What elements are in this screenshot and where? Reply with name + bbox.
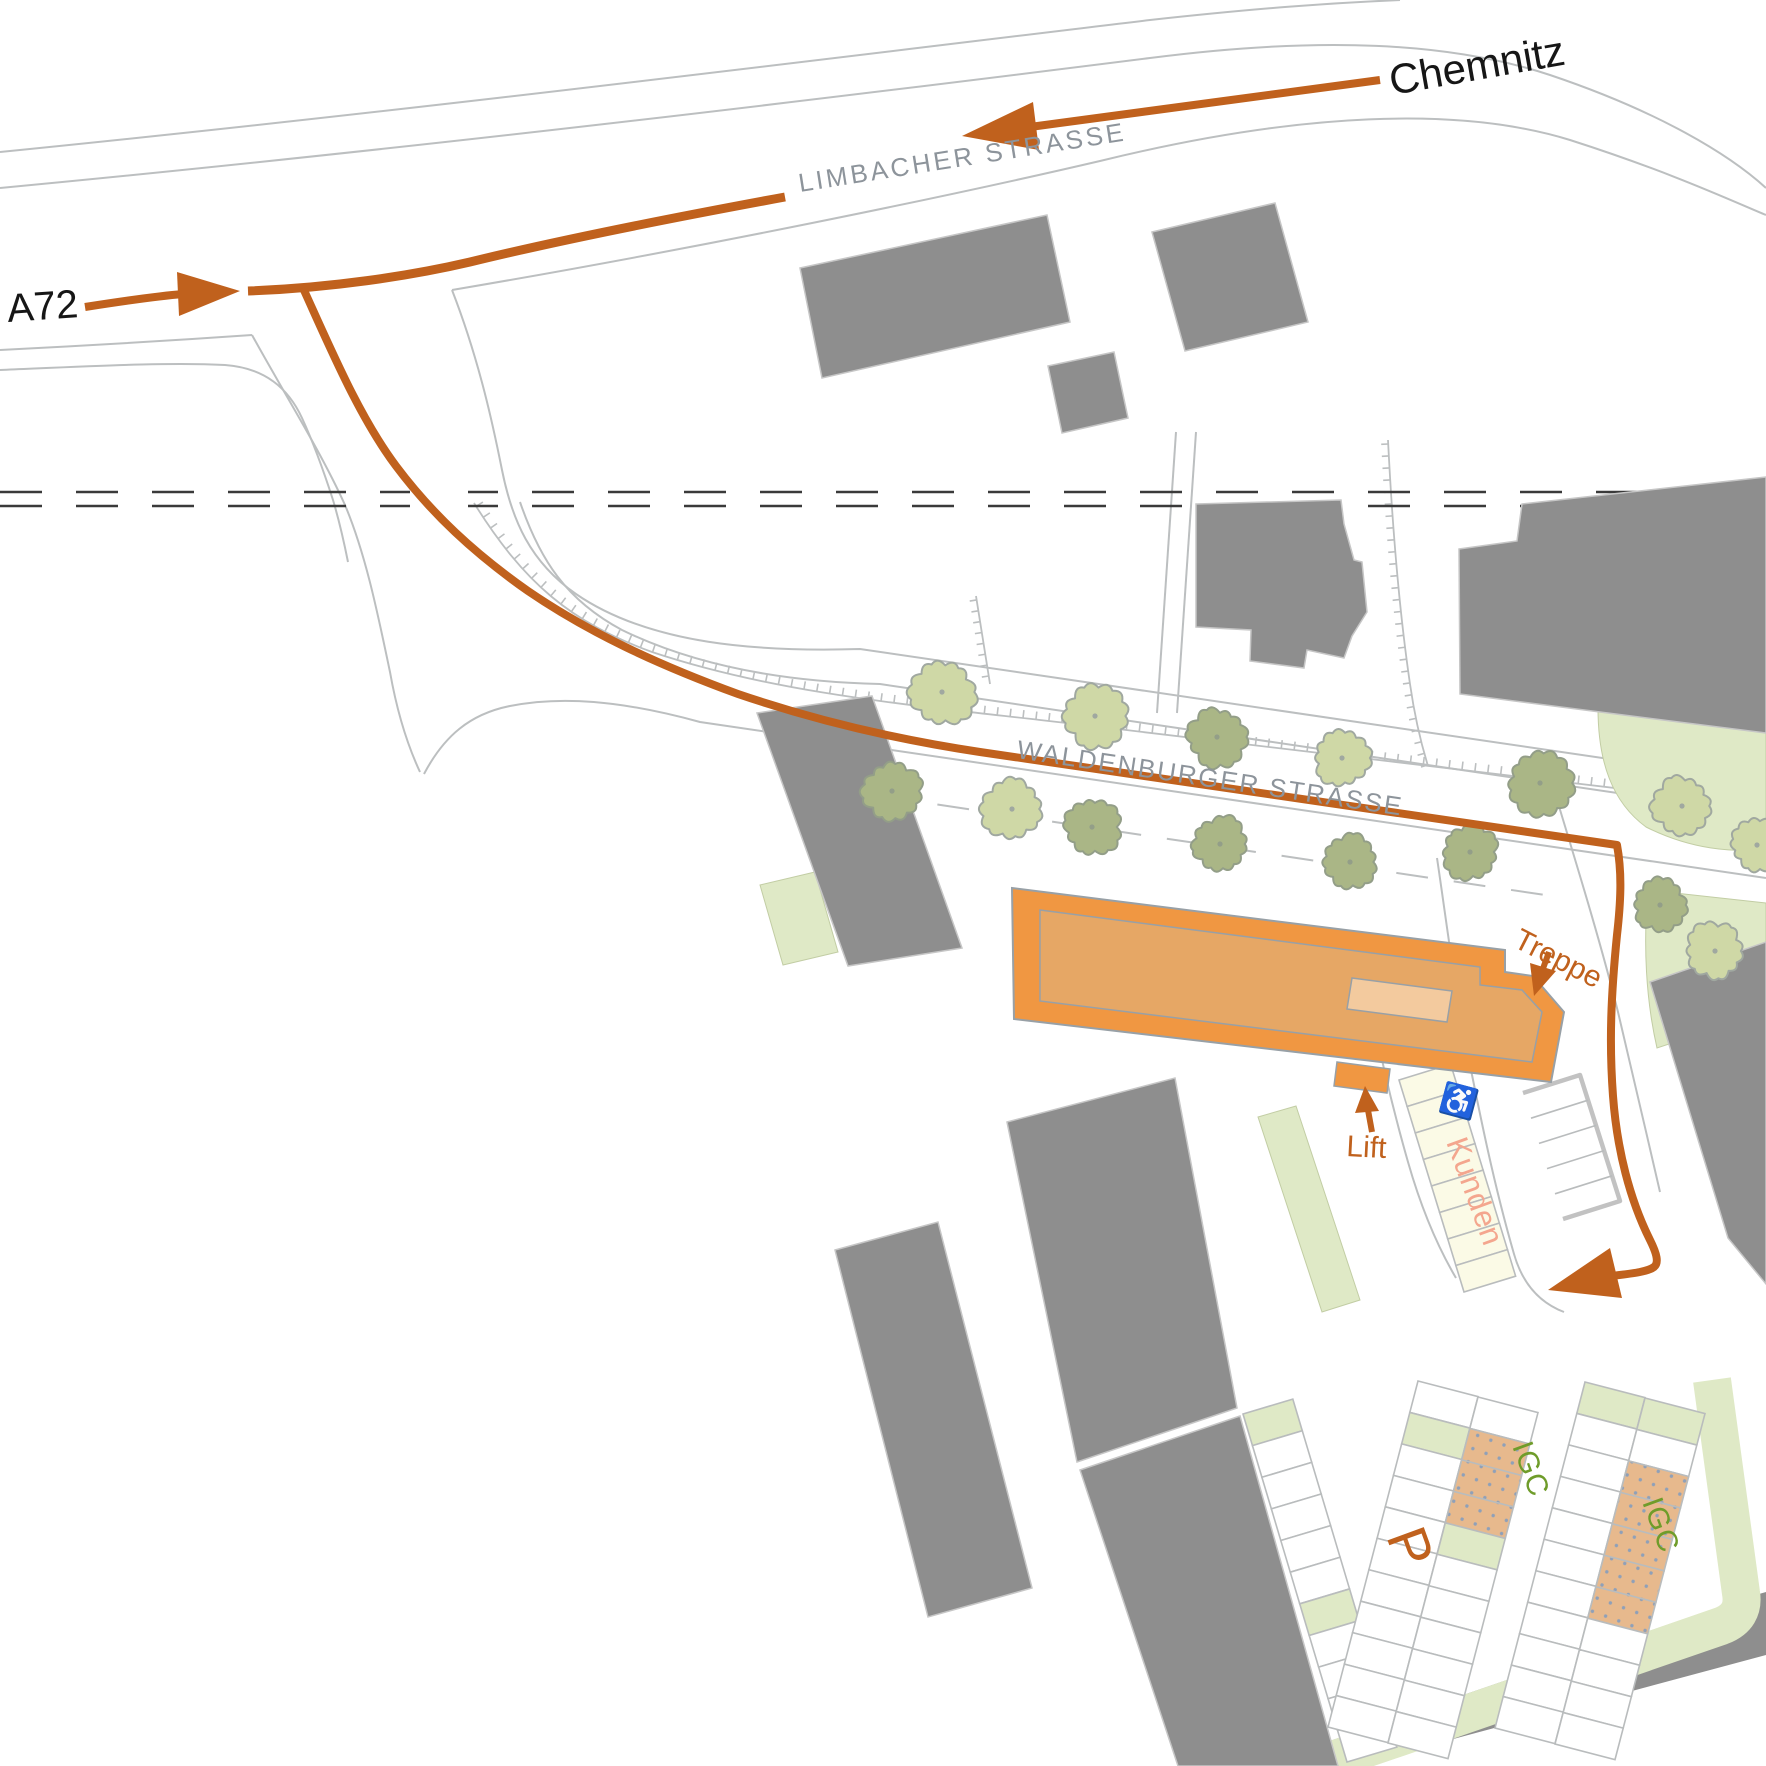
embankment-hatch-tick [907,697,908,705]
building-mid-house [1196,500,1367,668]
parcel-hatch-tick [1391,588,1398,589]
stall-ladder-tick [970,600,977,601]
parcel-hatch-tick [1388,552,1395,553]
stall-ladder-tick [982,676,989,677]
embankment-hatch-tick [1281,740,1282,748]
stall-ladder-tick [975,633,982,634]
tree-trunk-dot [1467,849,1472,854]
parcel-hatch-tick [1401,671,1408,672]
lawn-plaza-strip [1258,1106,1360,1312]
entrance-notch [1084,1030,1112,1052]
tree-trunk-dot [1009,806,1014,811]
embankment-hatch-tick [1152,725,1153,733]
parcel-hatch-tick [1387,540,1394,541]
parcel-hatch-tick [1405,695,1412,696]
embankment-hatch-tick [571,605,576,612]
building-south-large [1007,1078,1237,1462]
embankment-hatch-tick [506,544,512,549]
embankment-hatch-tick [514,554,520,559]
layer-destination [1012,888,1564,1093]
tree-trunk-dot [889,788,894,793]
tree-trunk-dot [1657,902,1662,907]
embankment-hatch-tick [1049,713,1050,721]
embankment-hatch-tick [1010,709,1011,717]
layer-railway [0,480,1766,516]
embankment-hatch-tick [804,681,805,689]
tree-trunk-dot [1754,842,1759,847]
embankment-hatch-tick [628,635,631,642]
embankment-hatch-tick [561,598,566,604]
embankment-hatch-tick [1462,762,1463,770]
a72-north-edge [0,335,252,350]
building-southwest-slab [835,1222,1032,1617]
stall-ladder-tick [971,611,978,612]
embankment-hatch-tick [616,630,619,637]
stall-ladder-tick [978,654,985,655]
embankment-hatch-tick [1307,743,1308,751]
chemnitz-label: Chemnitz [1385,27,1568,104]
embankment-hatch-tick [766,674,768,682]
embankment-hatch-tick [483,513,490,517]
embankment-hatch-tick [1255,737,1256,745]
embankment-hatch-tick [1036,712,1037,720]
embankment-hatch-tick [1578,775,1579,783]
tree-trunk-dot [1214,734,1219,739]
embankment-hatch-tick [1604,779,1605,787]
embankment-hatch-tick [640,640,643,647]
embankment-hatch-tick [1475,763,1476,771]
tree-trunk-dot [1679,803,1684,808]
embankment-hatch-tick [830,686,831,694]
embankment-hatch-tick [1449,760,1450,768]
embankment-hatch-tick [593,619,597,626]
embankment-hatch-tick [490,523,497,528]
embankment-hatch-tick [605,625,609,632]
parcel-hatch-tick [1414,742,1421,744]
a72-arrowhead [177,272,240,316]
building-limbacher-east [1152,203,1308,351]
embankment-hatch-tick [1591,777,1592,785]
parcel-hatch-tick [1393,600,1400,601]
embankment-hatch-tick [997,707,998,715]
destination-arrowhead [1548,1248,1622,1298]
embankment-hatch-tick [1410,755,1411,763]
building-east-block [1459,477,1766,733]
map-stage: ChemnitzA72LIMBACHER STRASSEWALDENBURGER… [0,0,1766,1766]
a72-label: A72 [6,282,80,331]
parcel-hatch-tick [1409,718,1416,719]
embankment-hatch-tick [551,590,556,596]
embankment-hatch-tick [1385,752,1386,760]
building-east-lower [1650,942,1766,1284]
tree-trunk-dot [1217,841,1222,846]
parcel-hatch-tick [1386,528,1393,529]
embankment-hatch-tick [1436,758,1437,766]
tree-trunk-dot [1712,948,1717,953]
embankment-hatch-tick [894,695,895,703]
embankment-hatch-tick [778,677,780,685]
parcel-hatch-tick [1394,611,1401,612]
stall-ladder-tick [977,643,984,644]
embankment-hatch-tick [1165,726,1166,734]
parcel-hatch-tick [1397,635,1404,636]
tree-trunk-dot [1092,713,1097,718]
lift-shaft-bump [1334,1062,1390,1093]
parcel-hatch-tick [1389,564,1396,565]
parcel-line-2 [1177,432,1196,713]
parcel-hatch-tick [1398,647,1405,648]
parcel-hatch-tick [1407,707,1414,708]
embankment-hatch-tick [665,649,667,657]
site-map: ChemnitzA72LIMBACHER STRASSEWALDENBURGER… [0,0,1766,1766]
stall-ladder [976,596,990,684]
embankment-hatch-tick [1268,739,1269,747]
embankment-hatch-tick [842,688,843,696]
embankment-hatch-tick [532,573,538,579]
stall-ladder-tick [973,622,980,623]
embankment-hatch-tick [523,563,529,568]
embankment-hatch-tick [1423,757,1424,765]
route-from-chemnitz [1030,80,1380,127]
parcel-hatch-tick [1390,576,1397,577]
parcel-hatch-tick [1395,623,1402,624]
embankment-hatch-tick [582,612,586,619]
embankment-hatch-tick [984,706,985,714]
embankment-hatch-tick [791,679,792,687]
route-from-a72 [85,294,183,307]
limbacher-label: LIMBACHER STRASSE [796,116,1128,197]
embankment-hatch-tick [1178,728,1179,736]
embankment-hatch-tick [541,581,546,587]
parcel-line-1 [1157,432,1176,713]
embankment-hatch-tick [1294,742,1295,750]
parcel-hatch-tick [1400,659,1407,660]
parcel-hatch [1388,440,1428,766]
tree-trunk-dot [1089,824,1094,829]
embankment-hatch-tick [1397,754,1398,762]
limbacher-north-outer [0,0,1400,152]
a72-south-edge [0,364,348,562]
lift-arrow-shaft [1368,1110,1372,1132]
embankment-hatch-tick [1488,765,1489,773]
embankment-hatch-tick [498,534,504,539]
tree-trunk-dot [939,689,944,694]
building-limbacher-small [1048,352,1128,433]
embankment-hatch-tick [1139,723,1140,731]
embankment-hatch-tick [817,684,818,692]
tree-trunk-dot [1347,859,1352,864]
building-limbacher-large [800,215,1070,378]
embankment-hatch-tick [855,690,856,698]
lift-label: Lift [1346,1130,1388,1165]
parcel-hatch-tick [1403,683,1410,684]
embankment-hatch-tick [881,693,882,701]
embankment-hatch-tick [653,645,656,653]
embankment-hatch-tick [1501,766,1502,774]
parcel-hatch-tick [1418,753,1425,755]
tree-trunk-dot [1339,755,1344,760]
stall-ladder-tick [980,665,987,666]
parking-outlined [1523,1075,1620,1219]
junction-west-edge [252,335,420,772]
embankment-hatch-tick [1023,710,1024,718]
tree-trunk-dot [1537,780,1542,785]
